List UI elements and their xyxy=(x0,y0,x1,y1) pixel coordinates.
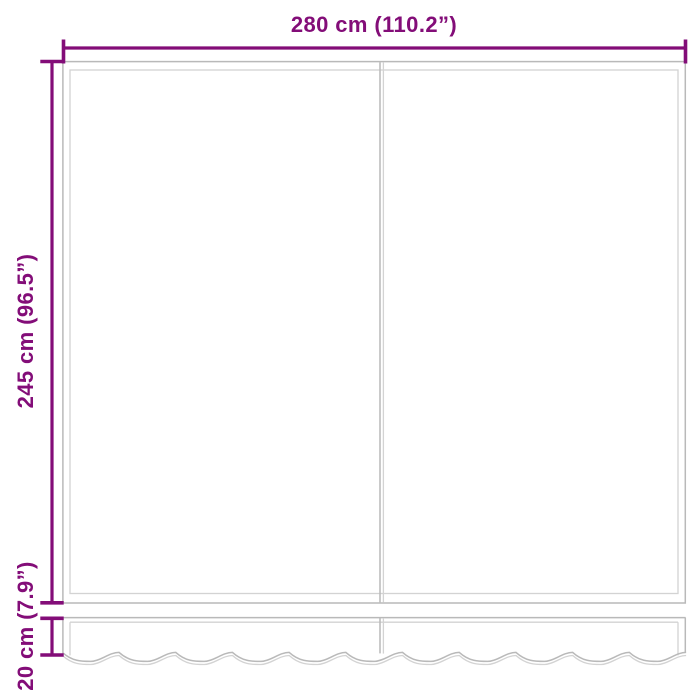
valance xyxy=(62,618,686,665)
fabric-panel-outline xyxy=(63,62,685,603)
awning-fabric-dimension-diagram: 280 cm (110.2”) 245 cm (96.5”) 20 cm (7.… xyxy=(0,0,700,700)
fabric-panel-hem-line xyxy=(70,70,678,594)
valance-wavy-edge xyxy=(62,652,686,664)
height-dimension-line xyxy=(40,62,63,603)
valance-hem-line xyxy=(70,622,678,655)
diagram-drawing xyxy=(0,0,700,700)
height-dimension-label: 245 cm (96.5”) xyxy=(13,254,39,409)
width-dimension-line xyxy=(62,40,687,64)
valance-height-dimension-line xyxy=(40,618,63,655)
valance-seam-line xyxy=(380,618,383,654)
width-dimension-label: 280 cm (110.2”) xyxy=(62,10,686,40)
fabric-panel-seam-line xyxy=(380,62,383,602)
valance-height-dimension-label: 20 cm (7.9”) xyxy=(13,561,39,691)
fabric-panel xyxy=(63,62,685,603)
valance-outline xyxy=(62,618,685,653)
